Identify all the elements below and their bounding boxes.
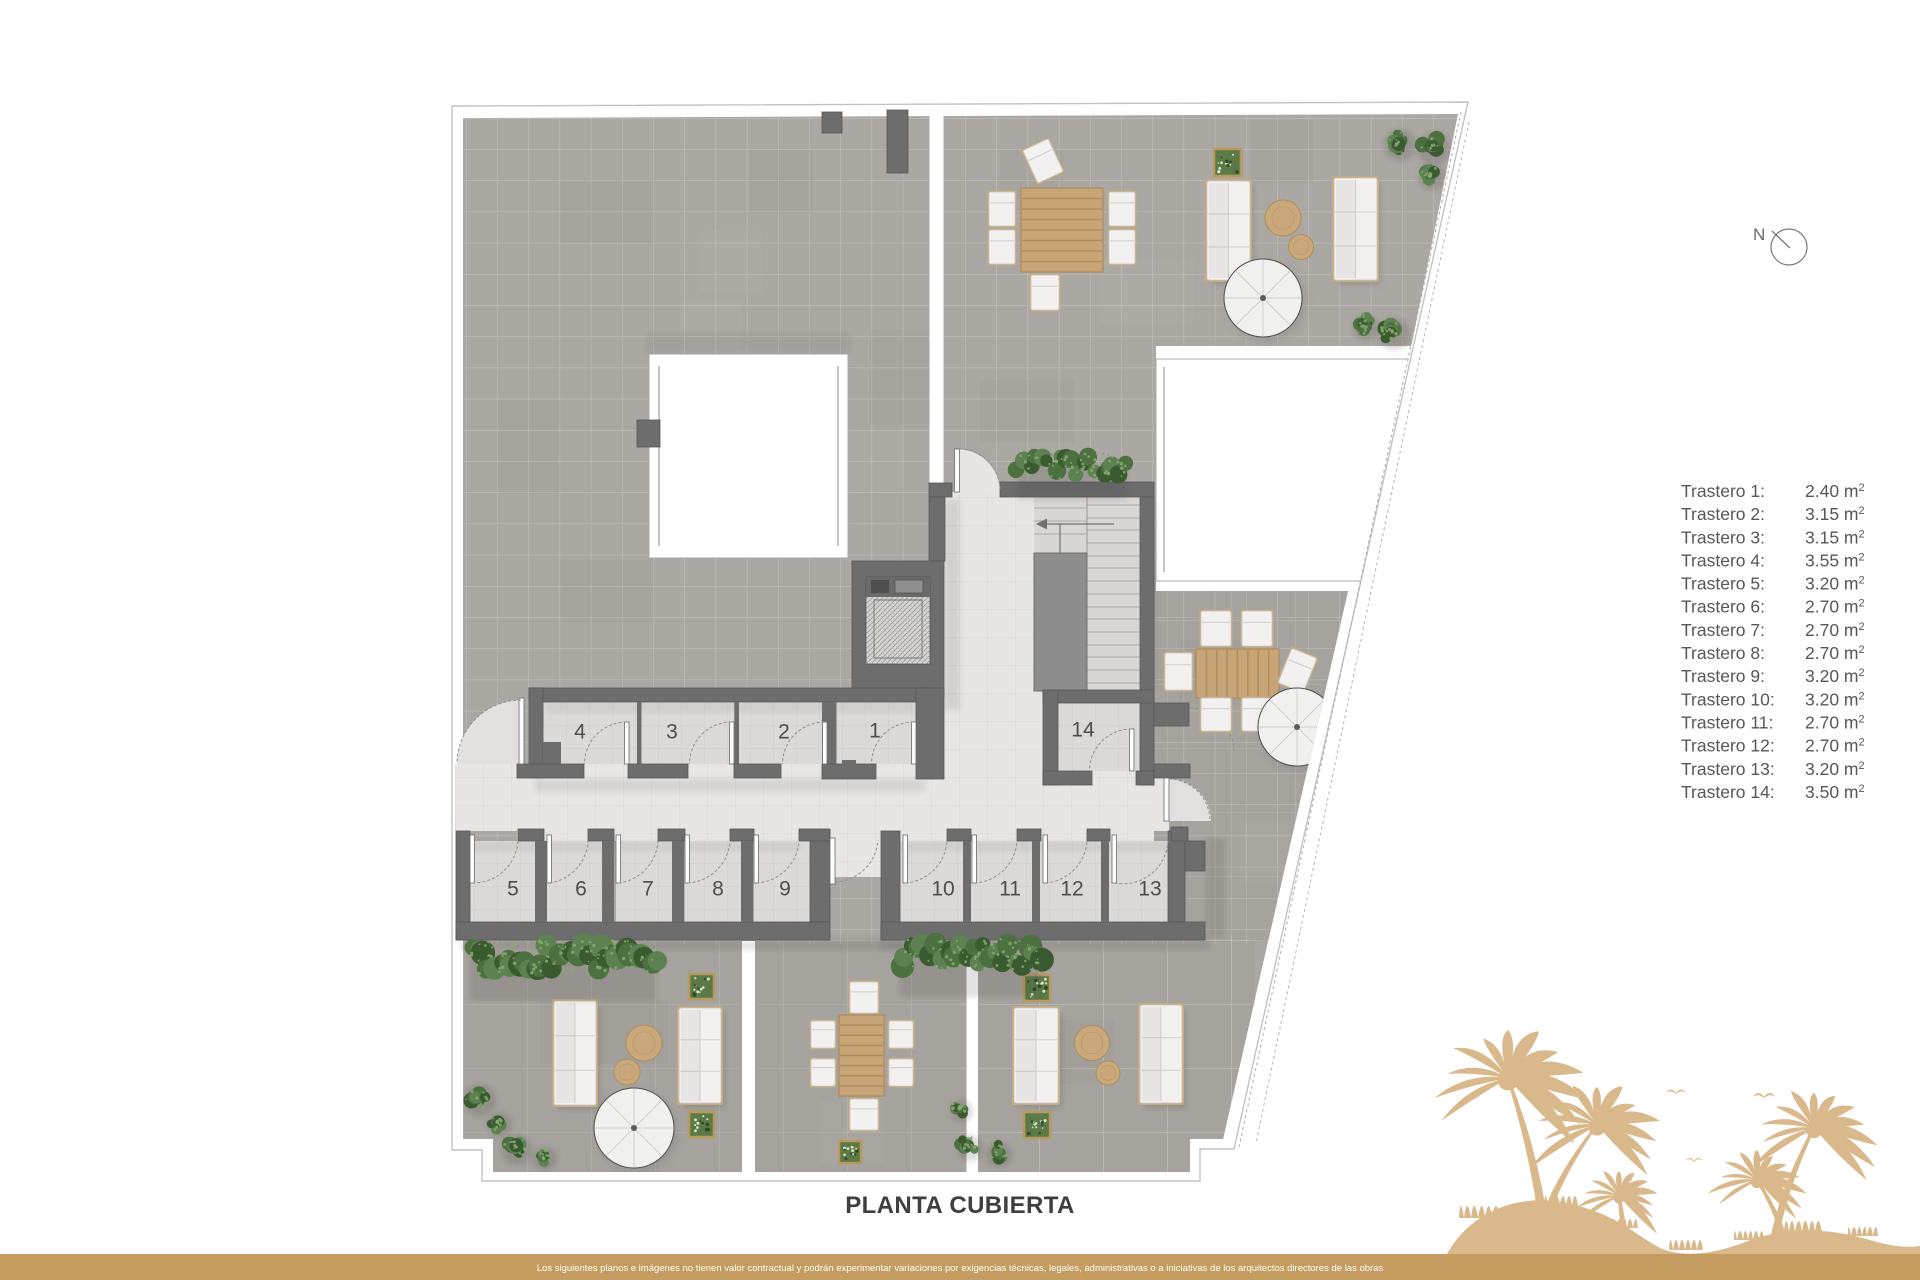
svg-text:2.70 m2: 2.70 m2	[1805, 620, 1865, 640]
svg-text:Trastero 5:: Trastero 5:	[1681, 574, 1765, 594]
svg-text:PLANTA CUBIERTA: PLANTA CUBIERTA	[845, 1192, 1075, 1219]
svg-text:Trastero 9:: Trastero 9:	[1681, 666, 1765, 686]
svg-text:Trastero 7:: Trastero 7:	[1681, 620, 1765, 640]
svg-text:8: 8	[712, 878, 724, 901]
svg-text:2.70 m2: 2.70 m2	[1805, 713, 1865, 733]
svg-text:Trastero 13:: Trastero 13:	[1681, 759, 1775, 779]
svg-text:13: 13	[1138, 878, 1161, 901]
svg-text:Trastero 14:: Trastero 14:	[1681, 782, 1775, 802]
svg-text:5: 5	[507, 878, 519, 901]
svg-text:Trastero 4:: Trastero 4:	[1681, 550, 1765, 570]
svg-text:Trastero 12:: Trastero 12:	[1681, 736, 1775, 756]
svg-text:2.40 m2: 2.40 m2	[1805, 481, 1865, 501]
svg-text:3.50 m2: 3.50 m2	[1805, 782, 1865, 802]
svg-text:Trastero 2:: Trastero 2:	[1681, 504, 1765, 524]
svg-text:Trastero 11:: Trastero 11:	[1681, 713, 1773, 733]
svg-text:3.15 m2: 3.15 m2	[1805, 527, 1865, 547]
svg-text:3.20 m2: 3.20 m2	[1805, 666, 1865, 686]
svg-text:11: 11	[999, 878, 1021, 901]
svg-text:3.20 m2: 3.20 m2	[1805, 759, 1865, 779]
svg-text:3.15 m2: 3.15 m2	[1805, 504, 1865, 524]
svg-text:N: N	[1753, 225, 1765, 244]
svg-text:6: 6	[575, 878, 587, 901]
svg-text:12: 12	[1060, 878, 1083, 901]
svg-text:2: 2	[778, 721, 790, 744]
svg-text:2.70 m2: 2.70 m2	[1805, 597, 1865, 617]
svg-text:3.55 m2: 3.55 m2	[1805, 550, 1865, 570]
svg-text:2.70 m2: 2.70 m2	[1805, 736, 1865, 756]
svg-text:Trastero 1:: Trastero 1:	[1681, 481, 1765, 501]
svg-text:4: 4	[574, 721, 586, 744]
svg-text:Los siguientes planos e imágen: Los siguientes planos e imágenes no tien…	[537, 1263, 1384, 1274]
svg-text:3: 3	[666, 721, 678, 744]
svg-text:9: 9	[779, 878, 791, 901]
svg-text:Trastero 8:: Trastero 8:	[1681, 643, 1765, 663]
svg-text:1: 1	[869, 720, 881, 743]
svg-text:3.20 m2: 3.20 m2	[1805, 689, 1865, 709]
svg-text:7: 7	[642, 878, 654, 901]
svg-text:Trastero 3:: Trastero 3:	[1681, 527, 1765, 547]
svg-text:14: 14	[1071, 719, 1095, 742]
svg-text:Trastero 6:: Trastero 6:	[1681, 597, 1765, 617]
svg-text:2.70 m2: 2.70 m2	[1805, 643, 1865, 663]
svg-text:10: 10	[931, 878, 954, 901]
svg-text:Trastero 10:: Trastero 10:	[1681, 689, 1775, 709]
svg-text:3.20 m2: 3.20 m2	[1805, 574, 1865, 594]
